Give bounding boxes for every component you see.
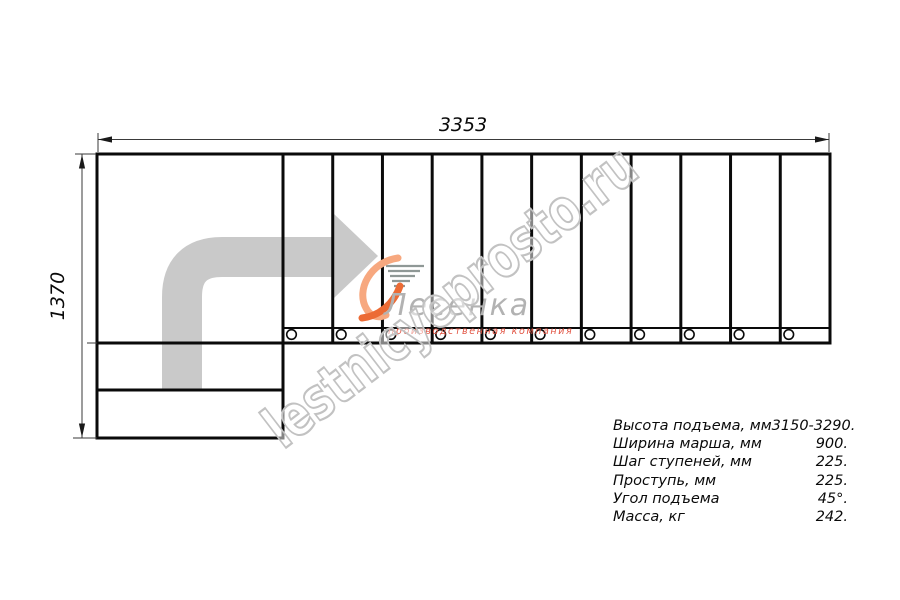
spec-label: Высота подъема, мм bbox=[613, 417, 772, 435]
dimension-left: 1370 bbox=[47, 154, 96, 438]
baluster-circle bbox=[734, 330, 744, 340]
left-dimension-label: 1370 bbox=[47, 272, 69, 320]
spec-value: 225. bbox=[816, 453, 848, 471]
baluster-circle bbox=[287, 330, 297, 340]
logo-company-caption: производственная компания bbox=[388, 326, 573, 337]
spec-value: 900. bbox=[816, 435, 848, 453]
dimension-arrowhead bbox=[98, 136, 112, 142]
dimension-arrowhead bbox=[79, 424, 85, 438]
spec-value: 45°. bbox=[818, 490, 848, 508]
spec-value: 3150-3290. bbox=[772, 417, 856, 435]
manufacturer-logo: Лесенка производственная компания bbox=[348, 252, 568, 347]
spec-value: 225. bbox=[816, 472, 848, 490]
baluster-circle bbox=[635, 330, 645, 340]
spec-row: Шаг ступеней, мм 225. bbox=[613, 453, 848, 471]
staircase-plan-drawing: 3353 1370 Лесенка производственная компа bbox=[0, 0, 900, 600]
spec-row: Угол подъема 45°. bbox=[613, 490, 848, 508]
baluster-circle bbox=[685, 330, 695, 340]
dimension-top: 3353 bbox=[98, 114, 829, 152]
spec-row: Масса, кг 242. bbox=[613, 508, 848, 526]
logo-company-name: Лесенка bbox=[384, 288, 530, 323]
spec-label: Угол подъема bbox=[613, 490, 720, 508]
spec-label: Масса, кг bbox=[613, 508, 685, 526]
spec-list: Высота подъема, мм 3150-3290. Ширина мар… bbox=[613, 417, 848, 526]
spec-row: Ширина марша, мм 900. bbox=[613, 435, 848, 453]
spec-row: Высота подъема, мм 3150-3290. bbox=[613, 417, 848, 435]
dimension-arrowhead bbox=[815, 136, 829, 142]
spec-label: Ширина марша, мм bbox=[613, 435, 762, 453]
baluster-circle bbox=[336, 330, 346, 340]
spec-row: Проступь, мм 225. bbox=[613, 472, 848, 490]
top-dimension-label: 3353 bbox=[439, 114, 487, 136]
spec-label: Проступь, мм bbox=[613, 472, 716, 490]
dimension-arrowhead bbox=[79, 155, 85, 169]
baluster-circle bbox=[585, 330, 595, 340]
landing-step-lower bbox=[97, 390, 283, 438]
travel-arrow-band bbox=[182, 257, 334, 390]
spec-label: Шаг ступеней, мм bbox=[613, 453, 752, 471]
baluster-circle bbox=[784, 330, 794, 340]
spec-value: 242. bbox=[816, 508, 848, 526]
